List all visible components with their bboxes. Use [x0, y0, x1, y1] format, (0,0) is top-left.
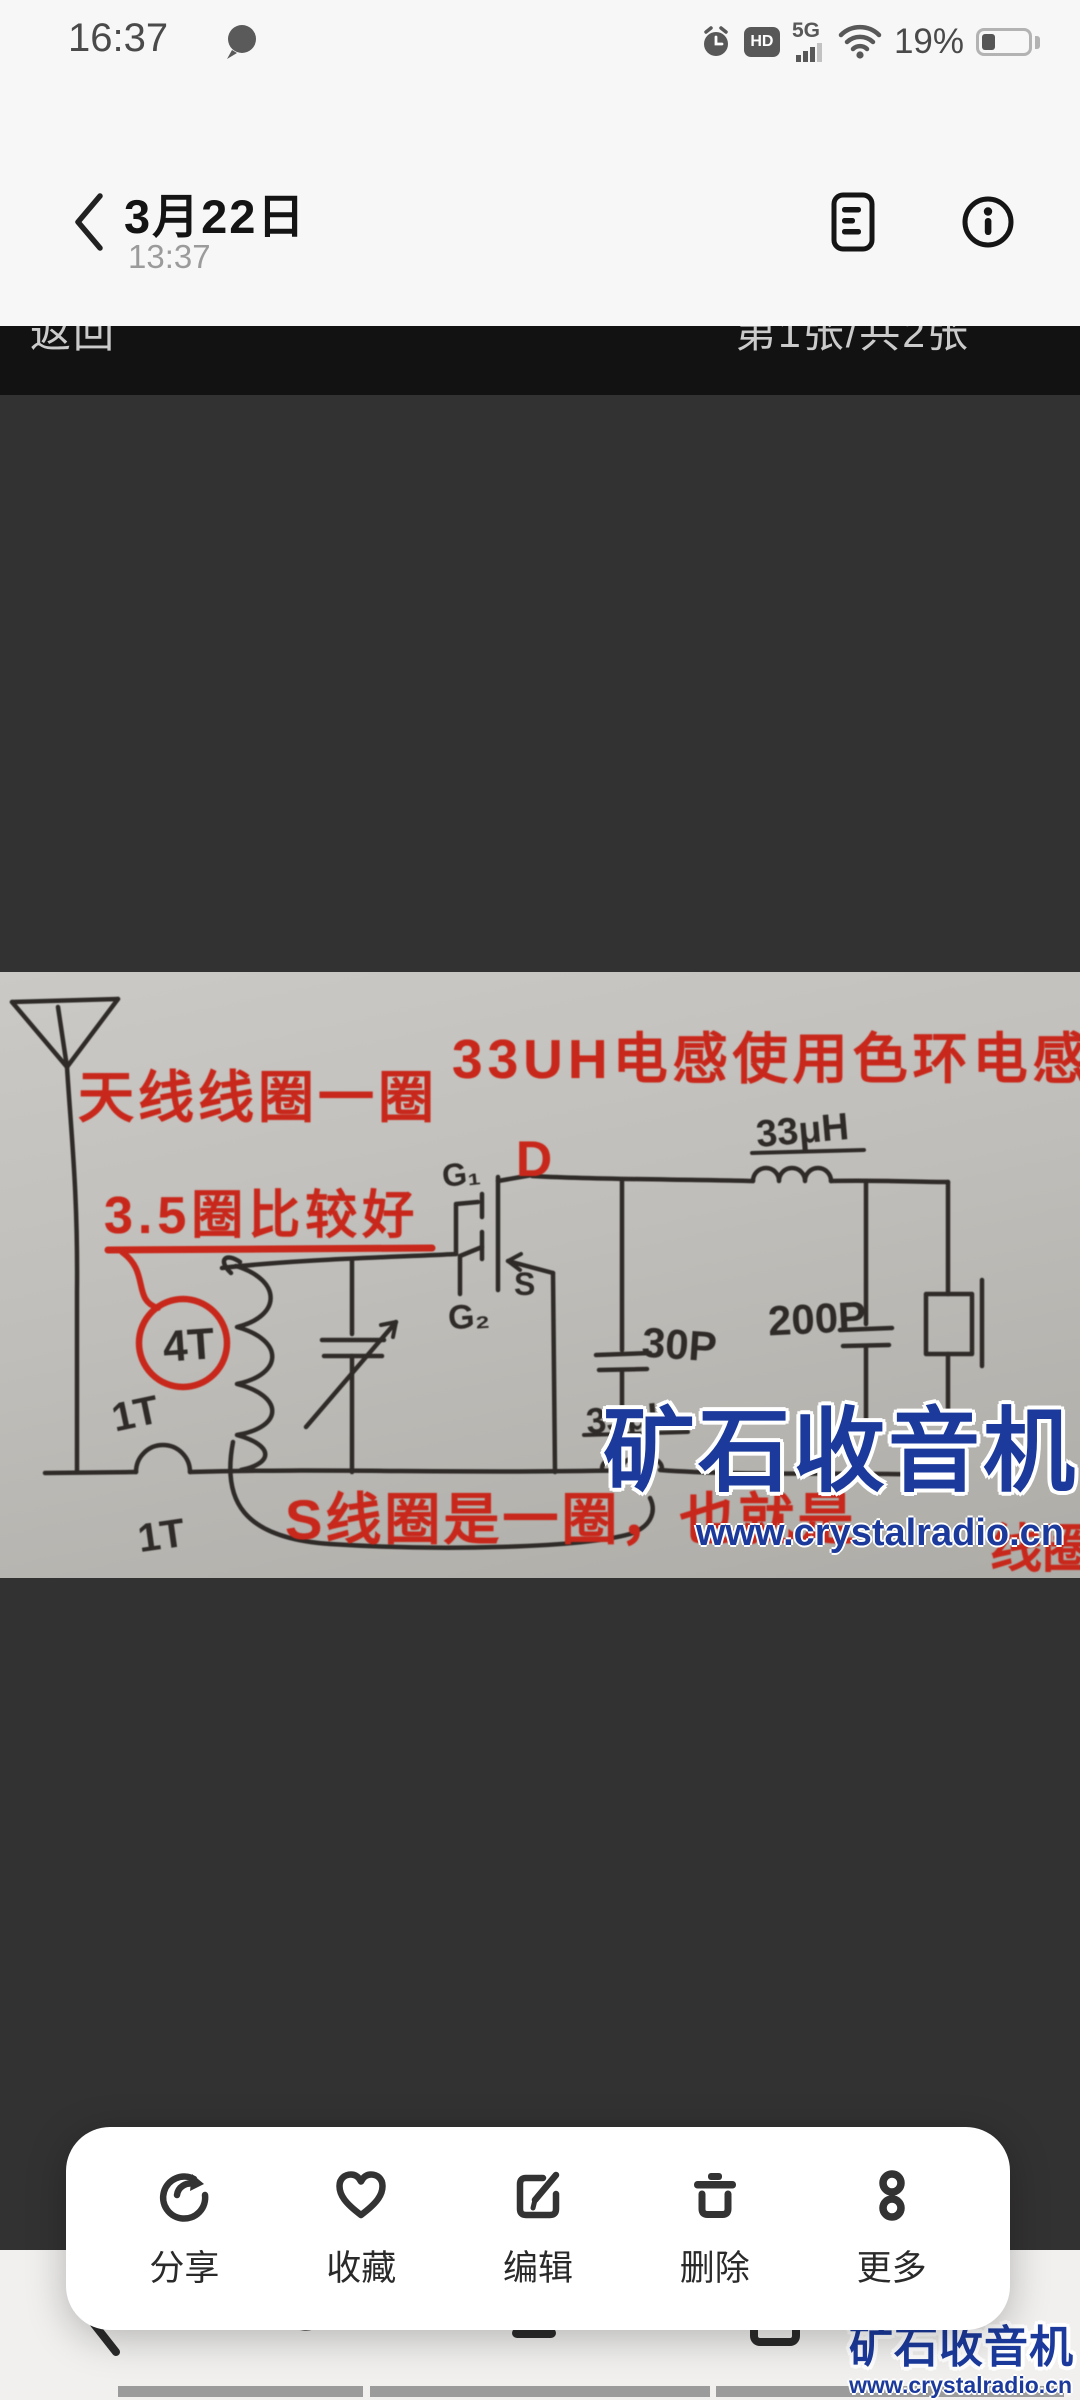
embedded-viewer-bar: 返回 第1张/共2张 — [0, 326, 1080, 395]
photo-watermark-url: www.crystalradio.cn — [696, 1514, 1064, 1552]
thumb-bar-2 — [370, 2386, 710, 2397]
page-watermark-url: www.crystalradio.cn — [849, 2374, 1072, 2397]
back-chevron-icon[interactable] — [68, 190, 108, 254]
label-inductor-top: 33μH — [755, 1108, 851, 1154]
label-1-turn-lower: 1T — [135, 1513, 187, 1559]
notification-bubble-icon — [222, 22, 262, 62]
network-type-label: 5G — [792, 19, 820, 43]
hd-badge: HD — [744, 27, 780, 57]
edit-button[interactable]: 编辑 — [450, 2127, 627, 2330]
phone-screen: 16:37 HD 5G — [0, 0, 1080, 2400]
share-label: 分享 — [149, 2240, 219, 2291]
edit-icon — [508, 2166, 568, 2226]
battery-percent: 19% — [894, 22, 964, 62]
battery-nub — [1035, 36, 1040, 49]
label-gate1: G₁ — [440, 1156, 481, 1192]
trash-icon — [685, 2166, 745, 2226]
favorite-button[interactable]: 收藏 — [273, 2127, 450, 2330]
thumb-bar-1 — [118, 2386, 363, 2397]
status-time: 16:37 — [68, 16, 168, 61]
embedded-photo-counter: 第1张/共2张 — [735, 326, 970, 358]
cell-signal: 5G — [792, 22, 826, 62]
alarm-icon — [700, 25, 732, 59]
photo-time: 13:37 — [128, 238, 211, 276]
wifi-icon — [838, 24, 882, 60]
label-1-turn-upper: 1T — [108, 1390, 162, 1439]
notes-icon[interactable] — [828, 192, 878, 252]
share-button[interactable]: 分享 — [96, 2127, 273, 2330]
page-title: 3月22日 — [124, 178, 306, 247]
heart-icon — [331, 2166, 391, 2226]
favorite-label: 收藏 — [326, 2240, 396, 2291]
label-source: S — [514, 1268, 535, 1300]
label-cap-30p: 30P — [641, 1321, 718, 1368]
page-watermark-title: 矿石收音机 — [849, 2326, 1074, 2370]
circuit-photo[interactable]: 天线线圈一圈 33UH电感使用色环电感 3.5圈比较好 D S线圈是一圈，也就是… — [0, 972, 1080, 1578]
label-4-turns: 4T — [162, 1322, 216, 1369]
status-indicators: HD 5G 19% — [700, 22, 1040, 62]
embedded-back-label: 返回 — [30, 326, 116, 358]
note-turns: 3.5圈比较好 — [104, 1190, 419, 1242]
more-dots-icon — [862, 2166, 922, 2226]
more-label: 更多 — [857, 2240, 927, 2291]
delete-button[interactable]: 删除 — [626, 2127, 803, 2330]
info-icon[interactable] — [960, 194, 1016, 250]
battery-icon — [976, 28, 1032, 56]
delete-label: 删除 — [680, 2240, 750, 2291]
top-chrome: 16:37 HD 5G — [0, 0, 1080, 326]
share-icon — [154, 2166, 214, 2226]
more-button[interactable]: 更多 — [803, 2127, 980, 2330]
note-inductor-type: 33UH电感使用色环电感 — [452, 1032, 1080, 1087]
photo-watermark-title: 矿石收音机 — [603, 1406, 1078, 1498]
action-bar: 分享 收藏 编辑 删除 — [66, 2127, 1010, 2330]
signal-bars-icon — [796, 42, 826, 62]
label-cap-200p: 200P — [767, 1295, 867, 1342]
edit-label: 编辑 — [503, 2240, 573, 2291]
label-gate2: G₂ — [447, 1299, 491, 1336]
note-antenna-coil: 天线线圈一圈 — [78, 1070, 438, 1126]
label-drain: D — [516, 1134, 552, 1184]
